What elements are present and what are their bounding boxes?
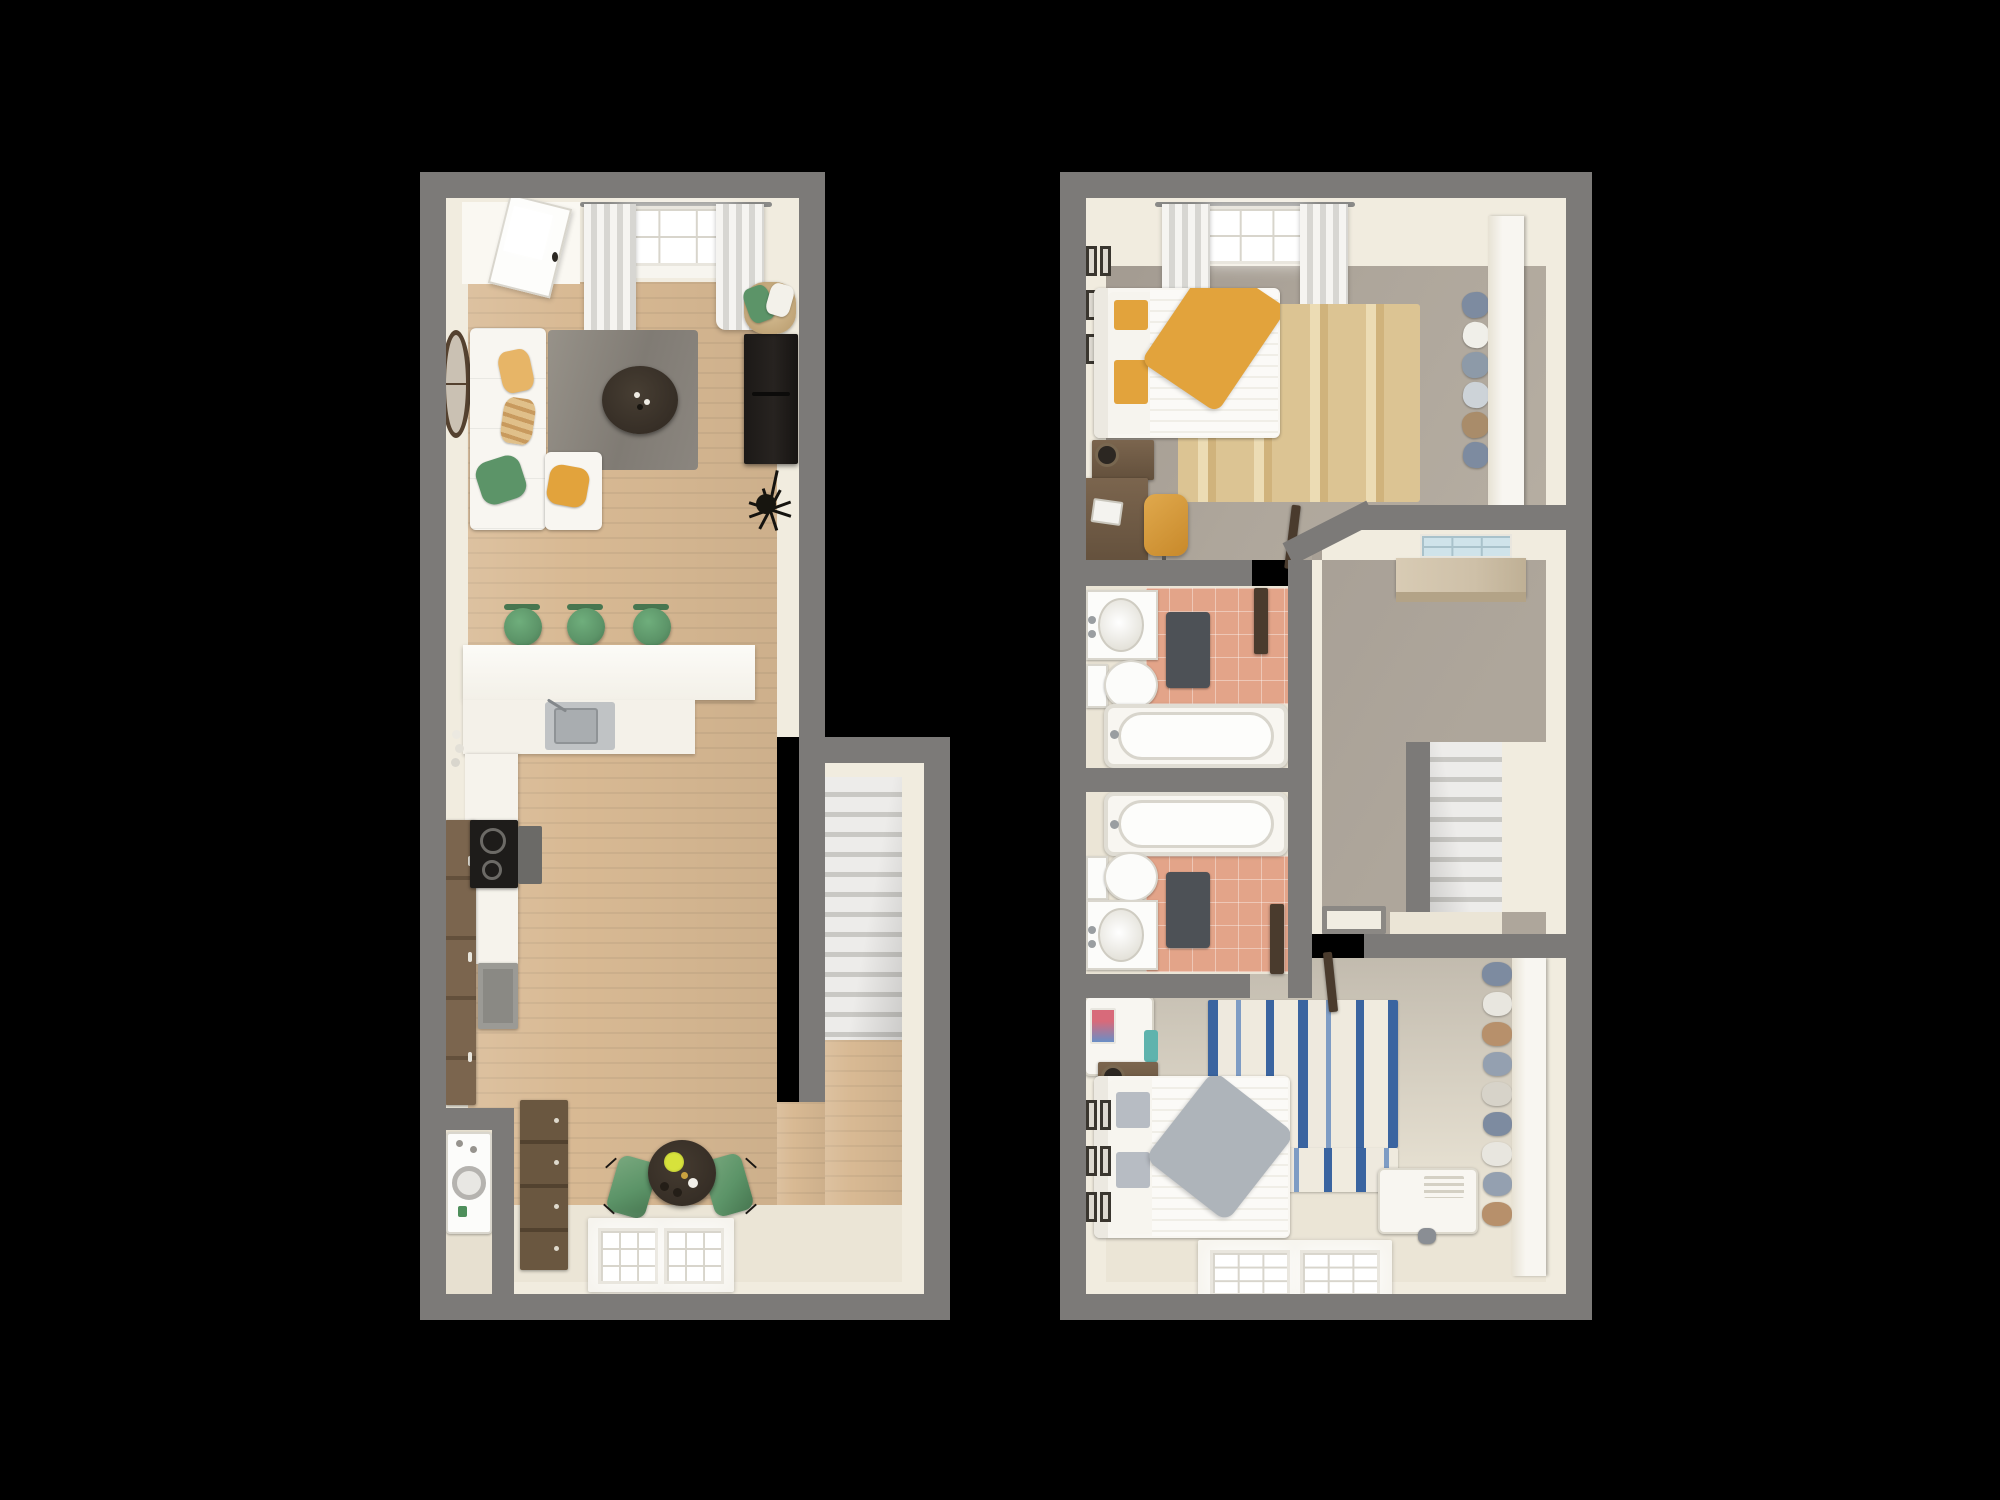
b2-shoes-7: [1482, 1142, 1512, 1166]
bedroom2-window-pane-left: [1210, 1250, 1290, 1296]
staircase2-shading: [1430, 742, 1502, 912]
bedroom1-bed: [1094, 288, 1280, 438]
wall2-right: [1566, 172, 1592, 1320]
b2-frame-2: [1100, 1100, 1111, 1130]
bedroom2-window-pane-right: [1300, 1250, 1380, 1296]
b2-shoes-2: [1483, 992, 1512, 1016]
b2-frame-3: [1086, 1146, 1097, 1176]
b2-shoes-4: [1483, 1052, 1512, 1076]
b1-pillow-accent-2: [1114, 360, 1148, 404]
right-wall-face-2f: [1546, 198, 1566, 1294]
hall-floor-hatch: [1322, 906, 1386, 934]
bedroom2-laptop: [1090, 1008, 1116, 1044]
wall2-left: [1060, 172, 1086, 1320]
b1-headboard: [1094, 288, 1108, 438]
bathroom2-toilet-bowl: [1104, 852, 1158, 902]
b2-shoes-9: [1482, 1202, 1512, 1226]
bedroom1-desk-chair: [1144, 494, 1188, 556]
wall-hall-bed2-connector: [1288, 934, 1312, 998]
b2-pillow-accent-2: [1116, 1152, 1150, 1188]
wall-hall-bed2-seg2: [1364, 934, 1566, 958]
b2-frame-4: [1100, 1146, 1111, 1176]
b1-frame-1: [1086, 246, 1097, 276]
bathroom2-sink-basin: [1098, 908, 1144, 962]
wall-bath-top-seg1: [1086, 560, 1252, 586]
b2-frame-6: [1100, 1192, 1111, 1222]
b2-shoes-6: [1483, 1112, 1512, 1136]
bathroom2-tub-faucet: [1110, 820, 1119, 829]
bathroom1-door-open: [1254, 588, 1268, 654]
b2-shoes-5: [1482, 1082, 1512, 1106]
b2-pillow-accent-1: [1116, 1092, 1150, 1128]
second-floor-plan: [0, 0, 2000, 1500]
hall-shelf-front: [1396, 592, 1526, 602]
b2-shoes-1: [1482, 962, 1512, 986]
b2-frame-5: [1086, 1192, 1097, 1222]
bedroom2-bed: [1094, 1076, 1290, 1238]
bathroom1-toilet-bowl: [1104, 660, 1158, 710]
hall-transom-window: [1420, 534, 1512, 558]
wall-banister: [1406, 742, 1430, 912]
b1-pillow-accent-1: [1114, 300, 1148, 330]
bathroom2-tub-inner: [1118, 800, 1274, 848]
bedroom1-window: [1204, 206, 1308, 264]
bathroom1-faucet: [1088, 616, 1096, 624]
bedroom1-lamp: [1098, 446, 1116, 464]
wall-bath-right: [1288, 560, 1312, 998]
b2-shoes-8: [1483, 1172, 1512, 1196]
bathroom1-tub-faucet: [1110, 730, 1119, 739]
bedroom2-closet-partition: [1512, 958, 1546, 1276]
bath-wall-face-sliver: [1312, 560, 1322, 934]
b2-frame-1: [1086, 1100, 1097, 1130]
bathroom2-door-open: [1270, 904, 1284, 974]
bedroom1-closet-partition: [1488, 216, 1524, 518]
bathroom1-sink-basin: [1098, 598, 1144, 652]
bedroom1-laptop: [1090, 498, 1123, 526]
bathroom1-tub-inner: [1118, 712, 1274, 760]
chest-lid-lines: [1424, 1176, 1464, 1198]
wall-bath-bottom-seg1: [1086, 974, 1250, 998]
bedroom2-teal-accent: [1144, 1030, 1158, 1062]
stair2-base-landing: [1390, 912, 1502, 934]
b1-frame-2: [1100, 246, 1111, 276]
wall-bedroom1-hall: [1360, 505, 1566, 530]
b2-shoes-3: [1482, 1022, 1512, 1046]
wall2-top: [1060, 172, 1592, 198]
chest-handle: [1418, 1228, 1436, 1244]
bathroom2-faucet: [1088, 926, 1096, 934]
bathroom2-mat: [1166, 872, 1210, 948]
hall-shelf: [1396, 558, 1526, 596]
bathroom1-mat: [1166, 612, 1210, 688]
wall-bath-mid: [1074, 768, 1312, 792]
stairwell2-right-face: [1502, 742, 1546, 912]
wall2-bottom: [1060, 1294, 1592, 1320]
floor-plan-canvas: [0, 0, 2000, 1500]
